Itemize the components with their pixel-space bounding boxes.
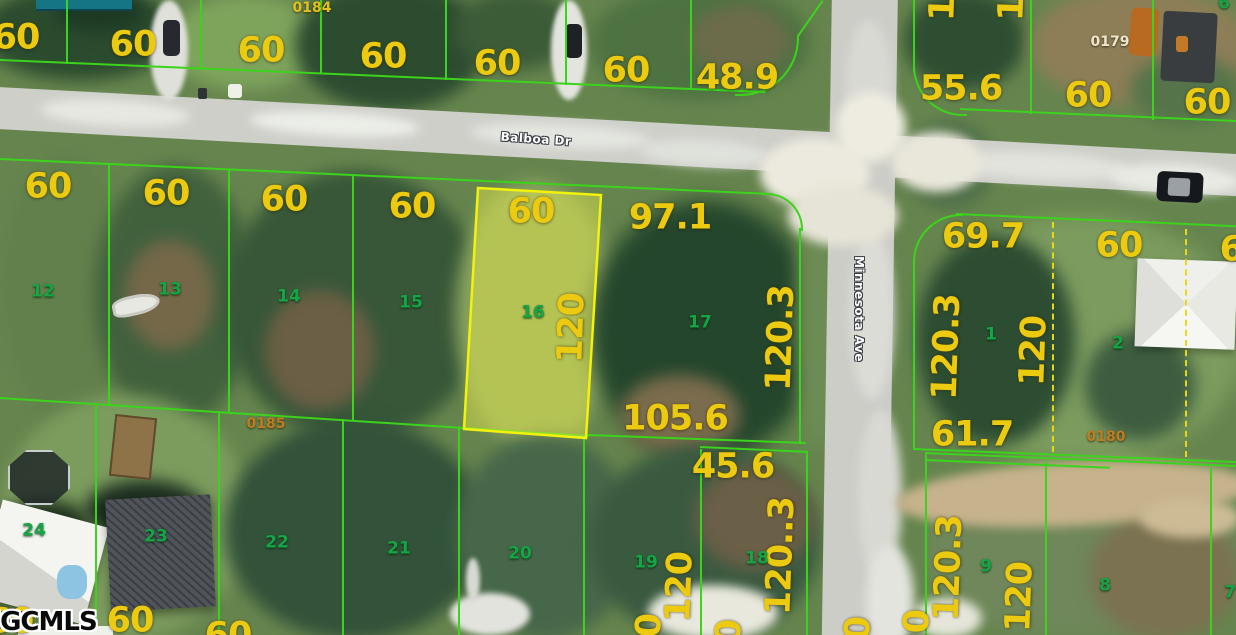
watermark-fgcmls: FGCMLS	[0, 609, 97, 635]
swimming-pool	[57, 565, 87, 599]
dim-label-partial: 120	[925, 0, 962, 22]
lot-number: 14	[277, 289, 301, 306]
dim-label: 60	[389, 190, 436, 225]
trash-bin	[228, 84, 242, 98]
lot-number: 9	[980, 559, 992, 576]
parcel-line	[690, 0, 692, 90]
intersection-sand	[788, 186, 898, 246]
house-roof-gray	[105, 494, 216, 611]
parcel-line	[95, 406, 97, 635]
lot-number: 8	[1099, 578, 1111, 595]
lot-number: 22	[265, 535, 289, 552]
lot-number: 17	[688, 315, 712, 332]
dim-label: 60	[0, 21, 39, 56]
dim-label-partial: 60	[1220, 233, 1236, 268]
dim-label: 60	[1096, 229, 1143, 264]
intersection-sand	[892, 132, 982, 192]
parcel-line	[108, 164, 110, 404]
dim-label: 60	[110, 28, 157, 63]
dim-label: 120	[1015, 315, 1052, 386]
dim-label-partial: 120	[630, 613, 667, 635]
subject-lot-number: 16	[521, 305, 545, 322]
dim-label: 60	[261, 183, 308, 218]
tractor	[1128, 7, 1159, 57]
lot-number-partial: 7	[1224, 585, 1236, 602]
trash-bin	[198, 88, 207, 99]
dim-label: 105.6	[622, 402, 728, 437]
lot-number: 19	[634, 555, 658, 572]
dim-label: 60	[25, 170, 72, 205]
lot-number: 15	[399, 295, 423, 312]
parcel-id: 0179	[1091, 35, 1130, 49]
dim-label-partial: 120	[839, 616, 876, 635]
intersection-sand	[836, 92, 906, 162]
parcel-id: 0185	[247, 417, 286, 431]
subject-depth-label: 120	[553, 292, 590, 363]
parcel-line-dashed	[1185, 229, 1187, 457]
dim-label: 120.3	[928, 294, 967, 401]
dim-label: 60	[603, 54, 650, 89]
dim-label: 120.3	[930, 515, 969, 622]
parcel-line	[228, 169, 230, 413]
lot-number: 12	[31, 284, 55, 301]
dirt-path	[1140, 498, 1236, 538]
building-teal-roof	[36, 0, 132, 11]
vehicle-roof	[1168, 177, 1191, 196]
parcel-line	[445, 0, 447, 80]
dim-label-partial: 60	[107, 604, 154, 635]
parcel-line	[913, 258, 915, 450]
dim-label: 120.3	[762, 285, 801, 392]
parcel-line	[218, 412, 220, 635]
dim-label: 60	[1065, 79, 1112, 114]
shed	[109, 414, 157, 480]
parcel-line	[352, 175, 354, 421]
parcel-line	[806, 452, 808, 635]
street-label-minnesota: Minnesota Ave	[853, 256, 865, 362]
trailer-cargo	[1176, 36, 1188, 52]
lot-number: 23	[144, 529, 168, 546]
dim-label: 97.1	[629, 201, 711, 236]
driveway	[450, 593, 530, 635]
dim-label: 120	[1001, 561, 1038, 632]
lot-number-partial: 6	[1218, 0, 1230, 13]
parcel-line	[458, 427, 460, 635]
parcel-line	[1210, 468, 1212, 635]
dim-label: 61.7	[931, 418, 1013, 453]
parcel-id: 0180	[1087, 430, 1126, 444]
dim-label-partial: 120	[710, 619, 747, 635]
vegetation-patch	[265, 290, 375, 410]
lot-number: 13	[158, 282, 182, 299]
lot-number: 20	[508, 546, 532, 563]
lot-number: 1	[985, 327, 997, 344]
dim-label: 45.6	[692, 450, 774, 485]
dim-label: 60	[238, 34, 285, 69]
parcel-line	[565, 0, 567, 85]
dim-label: 48.9	[696, 61, 778, 96]
lot-number: 2	[1112, 336, 1124, 353]
parcel-id: 0184	[293, 1, 332, 15]
dim-label: 60	[1184, 86, 1231, 121]
vegetation-patch	[225, 420, 485, 635]
dim-label: 55.6	[920, 72, 1002, 107]
lot-number: 24	[22, 523, 46, 540]
parcel-line	[342, 419, 344, 635]
parcel-line	[1152, 0, 1154, 120]
dim-label-partial: 120	[898, 609, 935, 635]
subject-frontage-label: 60	[508, 195, 555, 230]
lot-number: 21	[387, 541, 411, 558]
dim-label: 60	[474, 47, 521, 82]
dim-label-partial: 120	[994, 0, 1031, 22]
dim-label-partial: 60	[205, 619, 252, 635]
dim-label: 60	[143, 177, 190, 212]
parcel-map-image[interactable]: 60606060606048.955.66060606060606097.112…	[0, 0, 1236, 635]
parcel-line	[200, 0, 202, 69]
dim-label: 69.7	[942, 220, 1024, 255]
parcel-line	[66, 0, 68, 64]
dim-label: 60	[360, 40, 407, 75]
parcel-line	[913, 0, 915, 72]
lot-number: 18	[745, 551, 769, 568]
car	[163, 20, 180, 56]
dim-label: 120	[661, 551, 698, 622]
car	[565, 24, 582, 58]
parcel-line	[583, 436, 585, 635]
parcel-line	[1045, 461, 1047, 635]
trailer	[1160, 11, 1218, 84]
walkway	[466, 558, 480, 602]
